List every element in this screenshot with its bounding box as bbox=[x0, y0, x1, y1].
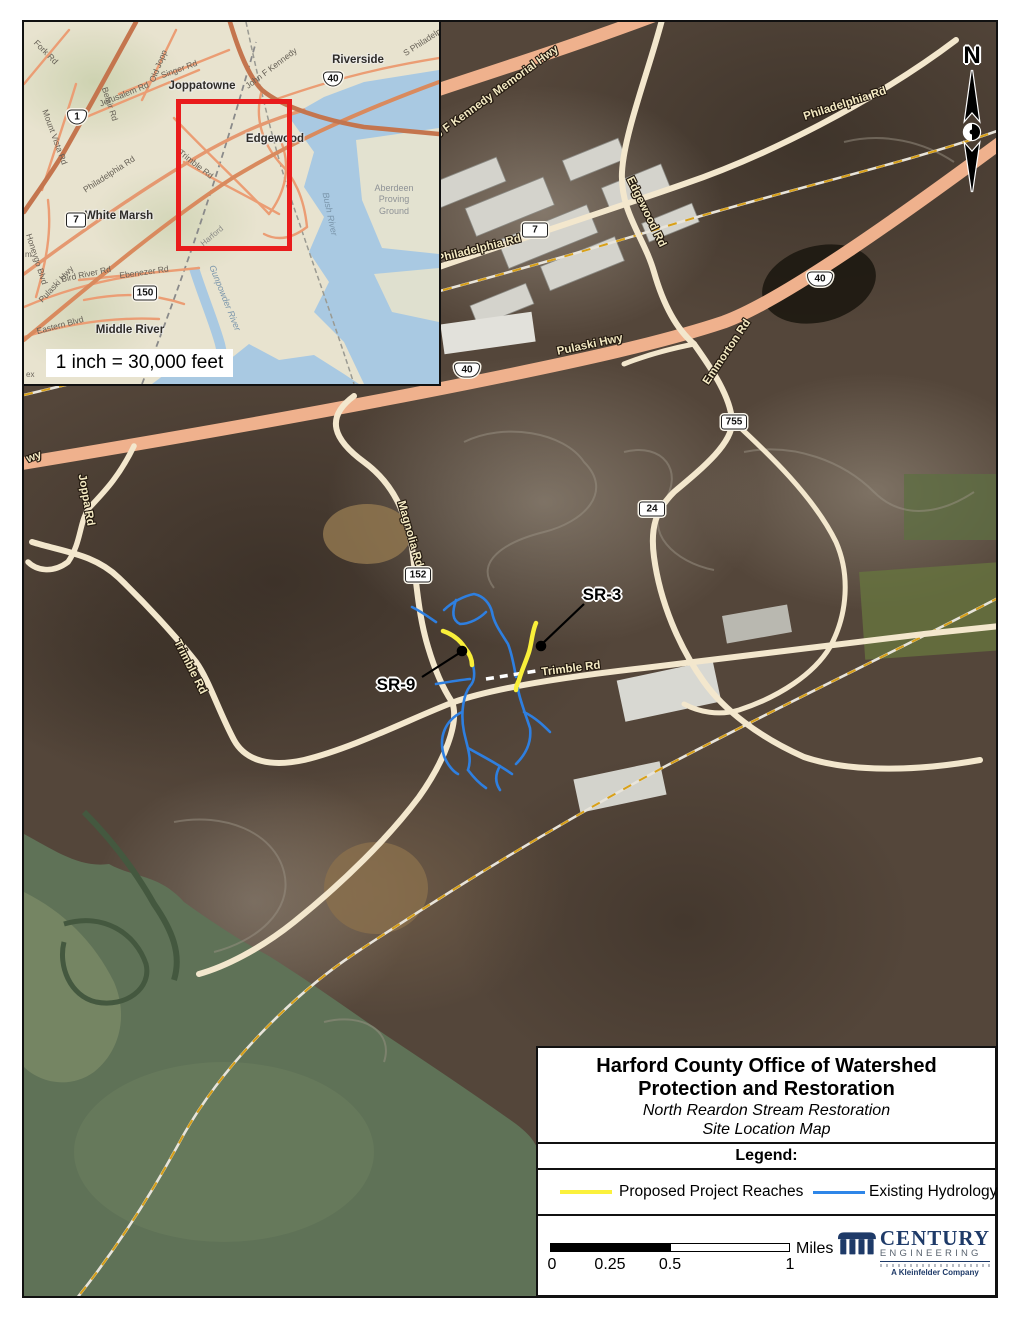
inset-shield-7: 7 bbox=[66, 213, 86, 228]
century-columns-icon bbox=[838, 1228, 876, 1264]
area-label-apg: Aberdeen Proving Ground bbox=[374, 183, 413, 217]
map-title-line2: Protection and Restoration bbox=[538, 1078, 995, 1101]
logo-tagline: A Kleinfelder Company bbox=[880, 1268, 990, 1277]
route-shield-152: 152 bbox=[405, 568, 431, 583]
route-shield-7: 7 bbox=[522, 223, 548, 238]
legend-heading: Legend: bbox=[538, 1144, 995, 1170]
logo-name: CENTURY bbox=[880, 1228, 990, 1248]
town-joppatowne: Joppatowne bbox=[168, 80, 235, 92]
town-riverside: Riverside bbox=[332, 54, 384, 66]
tan-clearing bbox=[324, 842, 428, 934]
field bbox=[904, 474, 998, 540]
scale-bar-fill bbox=[551, 1244, 671, 1251]
map-title-line1: Harford County Office of Watershed bbox=[538, 1055, 995, 1078]
warehouse bbox=[573, 761, 666, 813]
partial-label-left: m bbox=[25, 250, 32, 259]
scale-tick-0: 0 bbox=[548, 1256, 557, 1274]
proposed-reach-swatch bbox=[560, 1190, 612, 1194]
hydrology-swatch bbox=[813, 1191, 865, 1194]
town-white-marsh: White Marsh bbox=[85, 210, 153, 222]
title-block: Harford County Office of Watershed Prote… bbox=[538, 1048, 995, 1144]
scale-unit: Miles bbox=[796, 1240, 833, 1258]
inset-shield-150: 150 bbox=[133, 286, 157, 301]
legend-item-proposed-reaches: Proposed Project Reaches bbox=[619, 1183, 803, 1201]
inset-overview-map: Joppatowne Riverside Edgewood White Mars… bbox=[22, 20, 441, 386]
scale-tick-1: 1 bbox=[786, 1256, 795, 1274]
map-subtitle-line1: North Reardon Stream Restoration bbox=[538, 1101, 995, 1120]
building bbox=[722, 604, 792, 643]
logo-dots bbox=[880, 1264, 990, 1267]
scale-bar bbox=[550, 1243, 790, 1252]
map-sheet: J F Kennedy Memorial Hwy Philadelphia Rd… bbox=[0, 0, 1020, 1320]
map-subtitle-line2: Site Location Map bbox=[538, 1120, 995, 1139]
century-engineering-logo: CENTURY ENGINEERING A Kleinfelder Compan… bbox=[838, 1228, 990, 1277]
route-shield-755: 755 bbox=[721, 415, 747, 430]
extent-rectangle bbox=[176, 99, 292, 251]
site-label-sr9: SR-9 bbox=[377, 675, 416, 695]
town-middle-river: Middle River bbox=[96, 324, 164, 336]
site-label-sr3: SR-3 bbox=[583, 585, 622, 605]
partial-label-attribution: ex bbox=[26, 370, 34, 379]
inset-scale-text: 1 inch = 30,000 feet bbox=[46, 349, 233, 377]
ballfields bbox=[859, 562, 998, 660]
north-arrow-label: N bbox=[963, 42, 980, 70]
legend-item-existing-hydrology: Existing Hydrology bbox=[869, 1183, 997, 1201]
water-shade bbox=[74, 1062, 374, 1242]
crossing-dashes bbox=[486, 671, 536, 679]
warehouse bbox=[440, 312, 535, 355]
logo-subtitle: ENGINEERING bbox=[880, 1248, 990, 1262]
scale-tick-05: 0.5 bbox=[659, 1256, 681, 1274]
legend-panel: Harford County Office of Watershed Prote… bbox=[536, 1046, 997, 1297]
route-shield-24: 24 bbox=[639, 502, 665, 517]
legend-items: Proposed Project Reaches Existing Hydrol… bbox=[538, 1170, 995, 1216]
scale-tick-025: 0.25 bbox=[594, 1256, 625, 1274]
legend-footer: 0 0.25 0.5 1 Miles bbox=[538, 1216, 995, 1297]
